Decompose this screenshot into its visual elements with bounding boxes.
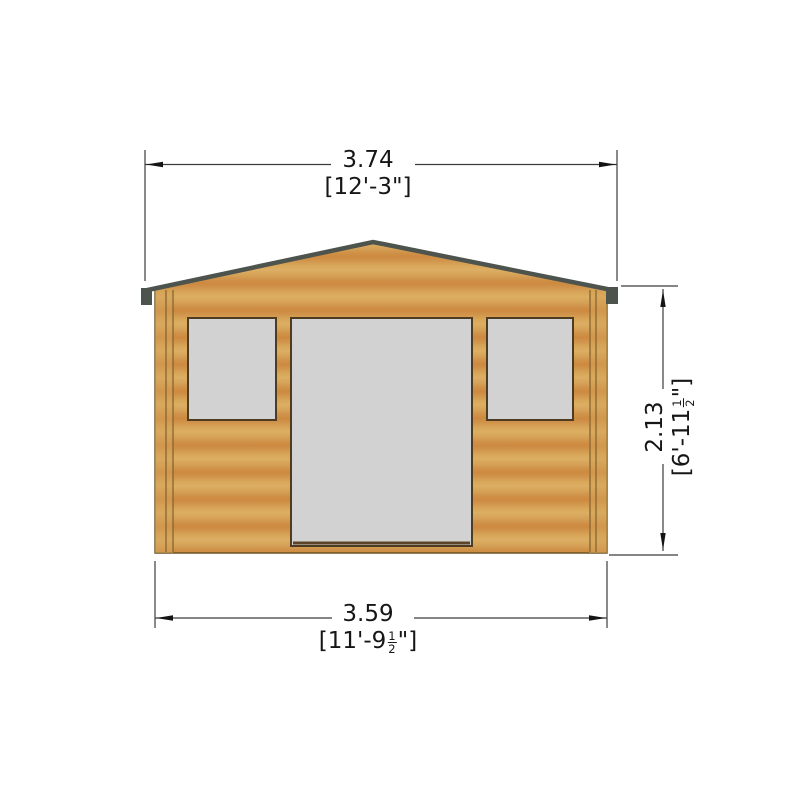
- fraction-denominator: 2: [387, 642, 396, 655]
- bottom-imperial-fraction: 1 2: [387, 630, 396, 655]
- right-dimension-label: 2.13 [6'-11 1 2 "]: [642, 378, 696, 476]
- right-window: [487, 318, 573, 420]
- top-dimension-arrow-left: [146, 162, 163, 167]
- top-dimension-label: 3.74 [12'-3"]: [324, 147, 411, 201]
- bottom-dimension-arrow-left: [156, 615, 173, 620]
- bottom-dimension-metric-value: 3.59: [319, 601, 417, 628]
- bottom-imperial-prefix: [11'-9: [319, 628, 387, 655]
- right-corner-board: [589, 289, 607, 553]
- bottom-dimension-imperial-value: [11'-9 1 2 "]: [319, 628, 417, 655]
- fraction-numerator: 1: [671, 399, 683, 406]
- fraction-denominator: 2: [683, 398, 696, 407]
- right-dimension-arrow-bottom: [660, 533, 665, 550]
- bottom-imperial-suffix: "]: [398, 628, 418, 655]
- bottom-dimension-arrow-right: [589, 615, 606, 620]
- right-dimension-arrow-top: [660, 290, 665, 307]
- left-fascia-end-cap: [141, 288, 152, 305]
- top-dimension-imperial-value: [12'-3"]: [324, 174, 411, 201]
- door-panel: [291, 318, 472, 546]
- left-window: [188, 318, 276, 420]
- right-imperial-prefix: [6'-11: [669, 409, 696, 477]
- right-imperial-suffix: "]: [669, 378, 696, 398]
- right-dimension-imperial-value: [6'-11 1 2 "]: [669, 378, 696, 476]
- top-dimension-metric-value: 3.74: [324, 147, 411, 174]
- top-dimension-arrow-right: [599, 162, 616, 167]
- right-dimension-metric-value: 2.13: [642, 378, 669, 476]
- bottom-dimension-label: 3.59 [11'-9 1 2 "]: [319, 601, 417, 655]
- elevation-drawing-canvas: 3.74 [12'-3"] 3.59 [11'-9 1 2 "] 2.13 [6…: [0, 0, 800, 800]
- left-corner-board: [155, 289, 173, 553]
- right-imperial-fraction: 1 2: [671, 398, 696, 407]
- fraction-numerator: 1: [388, 630, 395, 642]
- right-fascia-end-cap: [606, 287, 618, 304]
